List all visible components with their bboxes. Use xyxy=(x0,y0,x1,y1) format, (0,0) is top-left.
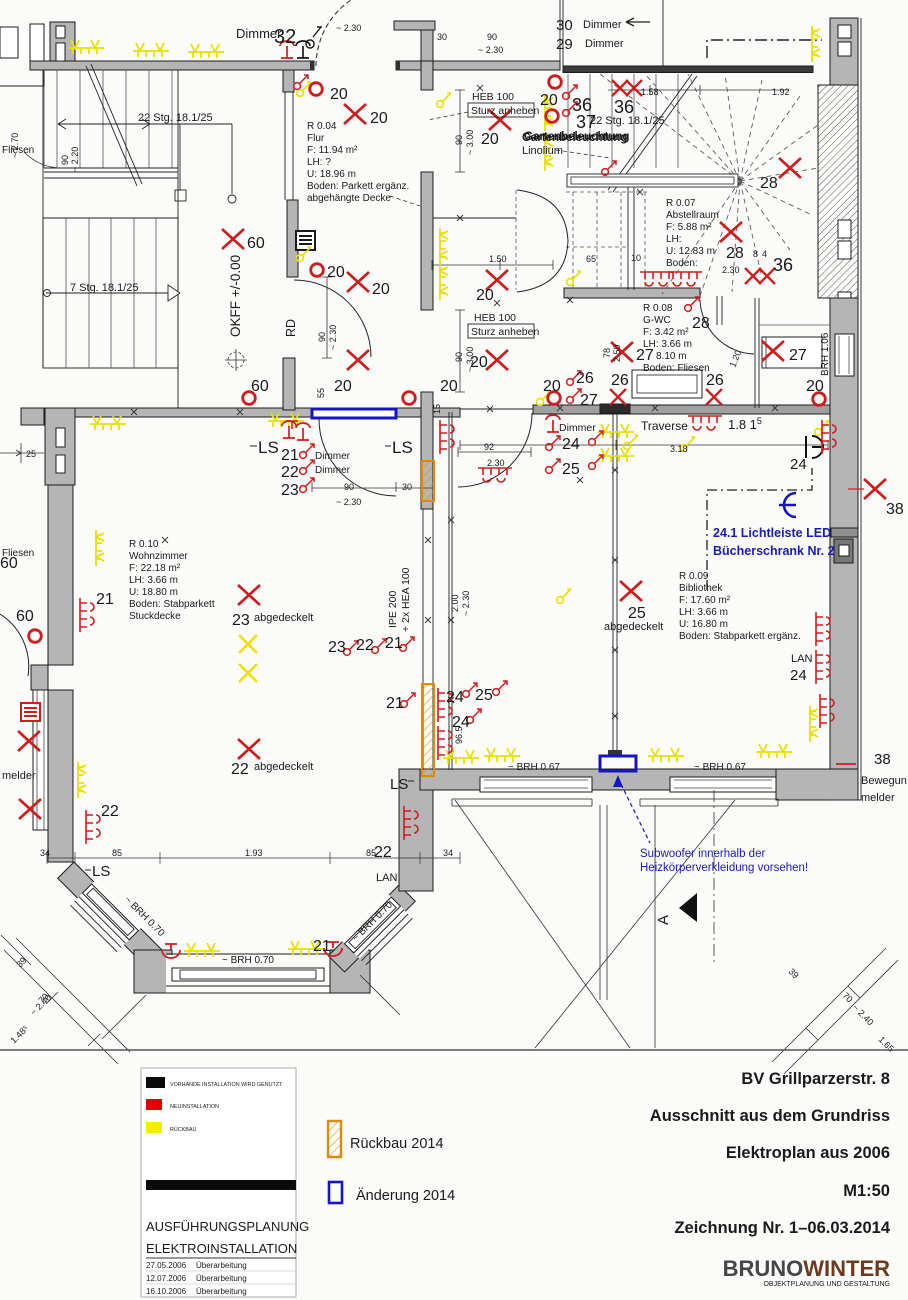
svg-text:3.18: 3.18 xyxy=(670,444,688,454)
svg-text:36: 36 xyxy=(773,255,793,275)
svg-text:20: 20 xyxy=(330,86,348,103)
svg-text:Heizkörperverkleidung vorsehen: Heizkörperverkleidung vorsehen! xyxy=(640,862,808,874)
svg-text:U: 18.96 m: U: 18.96 m xyxy=(307,169,356,180)
svg-text:LS: LS xyxy=(92,863,110,880)
svg-text:21: 21 xyxy=(281,447,299,464)
svg-text:LAN: LAN xyxy=(376,872,397,884)
svg-text:Rückbau 2014: Rückbau 2014 xyxy=(350,1136,444,1152)
svg-text:20: 20 xyxy=(543,378,561,395)
svg-text:2.30: 2.30 xyxy=(722,265,740,275)
svg-text:HEB 100: HEB 100 xyxy=(474,312,516,324)
svg-text:Traverse: Traverse xyxy=(641,419,688,433)
svg-text:~ BRH 0.67: ~ BRH 0.67 xyxy=(508,762,560,773)
svg-text:LH: ?: LH: ? xyxy=(307,157,331,168)
svg-text:Dimmer: Dimmer xyxy=(559,422,596,434)
svg-text:27: 27 xyxy=(789,347,807,364)
svg-text:abgedeckelt: abgedeckelt xyxy=(604,621,663,633)
svg-text:U: 18.80 m: U: 18.80 m xyxy=(129,587,178,598)
svg-text:LH:: LH: xyxy=(666,234,682,245)
svg-text:LAN: LAN xyxy=(791,653,812,665)
svg-text:~ 3.00: ~ 3.00 xyxy=(465,347,475,372)
svg-text:90: 90 xyxy=(487,32,497,42)
svg-text:~ 3.00: ~ 3.00 xyxy=(465,130,475,155)
svg-text:24.1 Lichtleiste LED: 24.1 Lichtleiste LED xyxy=(713,526,831,540)
svg-text:F: 3.42 m²: F: 3.42 m² xyxy=(643,327,689,338)
svg-text:IPE 200: IPE 200 xyxy=(387,590,399,628)
svg-text:90: 90 xyxy=(344,482,354,492)
svg-text:~ 2.20: ~ 2.20 xyxy=(70,147,80,172)
svg-text:26: 26 xyxy=(706,372,724,389)
svg-text:LH: 3.66 m: LH: 3.66 m xyxy=(129,575,178,586)
svg-text:abgedeckelt: abgedeckelt xyxy=(254,761,313,773)
svg-text:28: 28 xyxy=(760,175,778,192)
svg-text:melder: melder xyxy=(861,792,895,804)
svg-text:OBJEKTPLANUNG UND GESTALTUNG: OBJEKTPLANUNG UND GESTALTUNG xyxy=(763,1281,890,1288)
svg-text:24: 24 xyxy=(562,436,580,453)
svg-text:Überarbeitung: Überarbeitung xyxy=(196,1287,247,1296)
svg-text:Bibliothek: Bibliothek xyxy=(679,583,723,594)
svg-text:20: 20 xyxy=(372,281,390,298)
svg-text:2.30: 2.30 xyxy=(487,458,505,468)
svg-text:G-WC: G-WC xyxy=(643,315,671,326)
svg-text:34: 34 xyxy=(40,848,50,858)
svg-text:F: 17.60 m²: F: 17.60 m² xyxy=(679,595,731,606)
svg-text:90: 90 xyxy=(454,135,464,145)
svg-text:LS: LS xyxy=(258,438,279,457)
svg-text:1.8 15: 1.8 15 xyxy=(728,416,762,432)
svg-text:melder: melder xyxy=(2,770,36,782)
svg-text:VORHANDE INSTALLATION WIRD GEN: VORHANDE INSTALLATION WIRD GENUTZT xyxy=(170,1082,283,1088)
svg-text:22: 22 xyxy=(231,761,249,778)
svg-text:85: 85 xyxy=(366,848,376,858)
svg-text:20: 20 xyxy=(370,110,388,127)
svg-text:Linolium: Linolium xyxy=(522,145,563,157)
svg-text:29: 29 xyxy=(556,36,573,53)
svg-text:60: 60 xyxy=(251,378,269,395)
svg-text:BV Grillparzerstr. 8: BV Grillparzerstr. 8 xyxy=(741,1070,890,1088)
svg-text:~ BRH 0.70: ~ BRH 0.70 xyxy=(222,955,274,966)
svg-text:90: 90 xyxy=(454,352,464,362)
svg-text:RÜCKBAU: RÜCKBAU xyxy=(170,1126,196,1133)
svg-text:25: 25 xyxy=(475,687,493,704)
svg-text:~ 2.30: ~ 2.30 xyxy=(478,45,503,55)
svg-text:BRH 1.06: BRH 1.06 xyxy=(820,332,831,376)
svg-text:F: 5.88 m²: F: 5.88 m² xyxy=(666,222,712,233)
svg-text:60: 60 xyxy=(16,608,34,625)
svg-text:Sturz anheben: Sturz anheben xyxy=(471,105,539,117)
svg-text:~ 2.30: ~ 2.30 xyxy=(328,325,338,350)
svg-text:Dimmer: Dimmer xyxy=(585,38,624,50)
svg-text:U: 12.83 m: U: 12.83 m xyxy=(666,246,715,257)
svg-text:55: 55 xyxy=(316,388,326,398)
svg-text:NEUINSTALLATION: NEUINSTALLATION xyxy=(170,1104,219,1110)
svg-text:20: 20 xyxy=(476,287,494,304)
svg-text:Überarbeitung: Überarbeitung xyxy=(196,1274,247,1283)
svg-text:abgehängte Decke: abgehängte Decke xyxy=(307,193,391,204)
svg-text:16.10.2006: 16.10.2006 xyxy=(146,1287,187,1296)
svg-text:25: 25 xyxy=(562,461,580,478)
svg-text:Ausschnitt aus dem Grundriss: Ausschnitt aus dem Grundriss xyxy=(650,1107,890,1125)
svg-text:~ 2.70: ~ 2.70 xyxy=(10,133,20,158)
svg-text:OKFF +/-0.00: OKFF +/-0.00 xyxy=(228,255,243,337)
svg-text:Änderung 2014: Änderung 2014 xyxy=(356,1187,455,1204)
svg-text:20: 20 xyxy=(540,92,558,109)
svg-text:26: 26 xyxy=(611,372,629,389)
svg-text:Sturz anheben: Sturz anheben xyxy=(471,326,539,338)
svg-text:15: 15 xyxy=(432,404,442,414)
svg-text:RD: RD xyxy=(284,319,298,337)
svg-text:20: 20 xyxy=(481,131,499,148)
svg-text:25: 25 xyxy=(628,605,646,622)
svg-text:BRUNOWINTER: BRUNOWINTER xyxy=(723,1256,891,1281)
svg-text:~ BRH 0.67: ~ BRH 0.67 xyxy=(694,762,746,773)
svg-text:90: 90 xyxy=(317,332,327,342)
svg-text:22: 22 xyxy=(281,464,299,481)
svg-text:~ 2.30: ~ 2.30 xyxy=(336,497,361,507)
svg-text:7 Stg. 18.1/25: 7 Stg. 18.1/25 xyxy=(70,282,139,294)
svg-text:28: 28 xyxy=(692,315,710,332)
svg-text:2.50: 2.50 xyxy=(612,344,622,362)
svg-text:90: 90 xyxy=(60,155,70,165)
svg-text:22 Stg. 18.1/25: 22 Stg. 18.1/25 xyxy=(138,112,213,124)
svg-text:F: 11.94 m²: F: 11.94 m² xyxy=(307,145,358,156)
svg-text:Boden: Stabparkett: Boden: Stabparkett xyxy=(129,599,215,610)
svg-text:38: 38 xyxy=(874,751,891,768)
svg-text:HEB 100: HEB 100 xyxy=(472,91,514,103)
svg-text:28: 28 xyxy=(726,245,744,262)
svg-text:Bücherschrank Nr. 2: Bücherschrank Nr. 2 xyxy=(713,544,835,558)
svg-text:abgedeckelt: abgedeckelt xyxy=(254,612,313,624)
svg-text:27.05.2006: 27.05.2006 xyxy=(146,1261,187,1270)
svg-text:21: 21 xyxy=(385,635,403,652)
svg-text:24: 24 xyxy=(446,689,464,706)
svg-text:Abstellraum: Abstellraum xyxy=(666,210,719,221)
svg-text:R 0.07: R 0.07 xyxy=(666,198,696,209)
svg-text:LS: LS xyxy=(390,776,408,793)
svg-text:30: 30 xyxy=(556,17,573,34)
svg-text:1.58: 1.58 xyxy=(641,87,659,97)
svg-text:AUSFÜHRUNGSPLANUNG: AUSFÜHRUNGSPLANUNG xyxy=(146,1219,309,1234)
svg-text:ELEKTROINSTALLATION: ELEKTROINSTALLATION xyxy=(146,1241,297,1256)
svg-text:R 0.10: R 0.10 xyxy=(129,539,159,550)
svg-text:60: 60 xyxy=(247,235,265,252)
svg-text:Elektroplan aus 2006: Elektroplan aus 2006 xyxy=(726,1144,890,1162)
svg-text:23: 23 xyxy=(328,639,346,656)
svg-text:Fliesen: Fliesen xyxy=(2,548,34,559)
svg-text:21: 21 xyxy=(386,695,404,712)
svg-text:25: 25 xyxy=(26,449,36,459)
svg-text:23: 23 xyxy=(281,482,299,499)
svg-text:24: 24 xyxy=(790,456,807,473)
svg-text:20: 20 xyxy=(440,378,458,395)
svg-text:U: 16.80 m: U: 16.80 m xyxy=(679,619,728,630)
svg-text:R 0.08: R 0.08 xyxy=(643,303,673,314)
svg-text:Subwoofer innerhalb der: Subwoofer innerhalb der xyxy=(640,848,765,860)
svg-text:30: 30 xyxy=(402,482,412,492)
svg-text:Dimmer: Dimmer xyxy=(315,451,351,462)
svg-text:96.5: 96.5 xyxy=(454,726,464,744)
svg-text:21: 21 xyxy=(96,591,114,608)
svg-text:23: 23 xyxy=(232,612,250,629)
svg-text:12.07.2006: 12.07.2006 xyxy=(146,1274,187,1283)
svg-text:Bewegun: Bewegun xyxy=(861,775,907,787)
svg-text:22: 22 xyxy=(356,637,374,654)
svg-text:85: 85 xyxy=(112,848,122,858)
svg-text:Boden: Parkett ergänz.: Boden: Parkett ergänz. xyxy=(307,181,409,192)
svg-text:22: 22 xyxy=(101,803,119,820)
svg-text:Stuckdecke: Stuckdecke xyxy=(129,611,181,622)
svg-text:Boden:: Boden: xyxy=(666,258,698,269)
svg-text:78: 78 xyxy=(602,348,612,358)
svg-text:1.50: 1.50 xyxy=(489,254,507,264)
svg-text:22: 22 xyxy=(374,844,392,861)
svg-text:20: 20 xyxy=(334,378,352,395)
svg-text:30: 30 xyxy=(437,32,447,42)
svg-text:10: 10 xyxy=(631,253,641,263)
svg-text:92: 92 xyxy=(484,442,494,452)
svg-text:21: 21 xyxy=(313,938,331,955)
svg-text:LS: LS xyxy=(392,438,413,457)
svg-text:8.10 m: 8.10 m xyxy=(656,351,687,362)
svg-text:4: 4 xyxy=(762,249,767,259)
svg-text:22 Stg. 18.1/25: 22 Stg. 18.1/25 xyxy=(590,115,665,127)
svg-text:Wohnzimmer: Wohnzimmer xyxy=(129,551,188,562)
svg-text:36: 36 xyxy=(614,97,634,117)
svg-text:Boden: Stabparkett ergänz.: Boden: Stabparkett ergänz. xyxy=(679,631,801,642)
svg-text:2.00: 2.00 xyxy=(450,594,460,612)
svg-text:+ 2x HEA 100: + 2x HEA 100 xyxy=(400,567,412,632)
svg-text:M1:50: M1:50 xyxy=(843,1182,890,1200)
svg-text:Gartenbeleuchtung: Gartenbeleuchtung xyxy=(524,131,629,143)
svg-text:Dimmer: Dimmer xyxy=(583,19,622,31)
svg-text:8: 8 xyxy=(753,249,758,259)
svg-text:20: 20 xyxy=(806,378,824,395)
svg-text:LH: 3.66 m: LH: 3.66 m xyxy=(679,607,728,618)
svg-text:65: 65 xyxy=(586,254,596,264)
svg-text:LH: 3.66 m: LH: 3.66 m xyxy=(643,339,692,350)
svg-text:20: 20 xyxy=(327,264,345,281)
svg-text:24: 24 xyxy=(790,667,807,684)
svg-text:Dimmer: Dimmer xyxy=(236,26,282,41)
svg-text:F: 22.18 m²: F: 22.18 m² xyxy=(129,563,181,574)
svg-text:R 0.04: R 0.04 xyxy=(307,121,337,132)
svg-text:~ 2.30: ~ 2.30 xyxy=(336,23,361,33)
svg-text:Boden: Fliesen: Boden: Fliesen xyxy=(643,363,710,374)
svg-text:Dimmer: Dimmer xyxy=(315,465,351,476)
svg-text:1.93: 1.93 xyxy=(245,848,263,858)
svg-text:26: 26 xyxy=(576,370,594,387)
svg-text:R 0.09: R 0.09 xyxy=(679,571,709,582)
svg-text:34: 34 xyxy=(443,848,453,858)
svg-text:Überarbeitung: Überarbeitung xyxy=(196,1261,247,1270)
svg-text:~ 2.30: ~ 2.30 xyxy=(461,591,471,616)
svg-text:1.92: 1.92 xyxy=(772,87,790,97)
svg-text:A: A xyxy=(655,915,672,925)
svg-text:Zeichnung Nr. 1–06.03.2014: Zeichnung Nr. 1–06.03.2014 xyxy=(674,1219,890,1237)
svg-text:27: 27 xyxy=(580,392,598,409)
svg-text:38: 38 xyxy=(886,501,904,518)
svg-text:Flur: Flur xyxy=(307,133,325,144)
